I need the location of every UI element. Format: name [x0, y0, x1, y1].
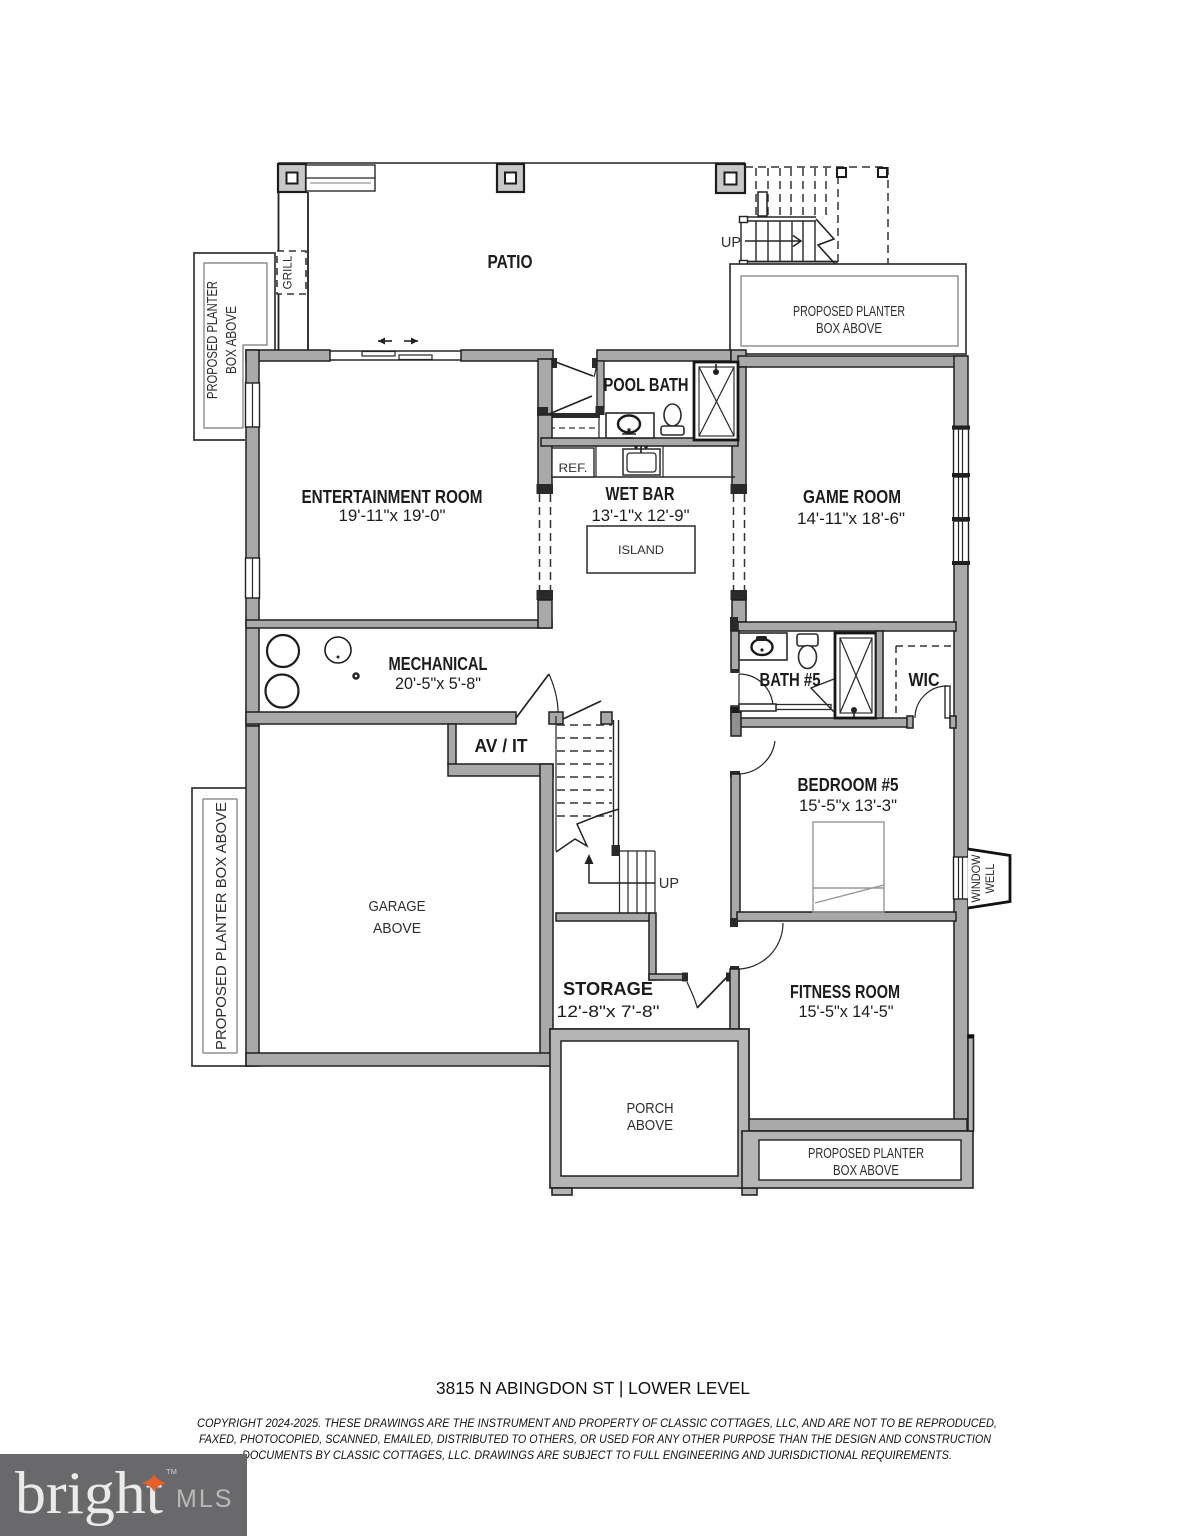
svg-text:GAME ROOM: GAME ROOM [803, 487, 901, 507]
svg-text:12'-8"x 7'-8": 12'-8"x 7'-8" [557, 1003, 660, 1021]
svg-text:TM: TM [166, 1467, 177, 1476]
svg-text:UP: UP [659, 876, 679, 892]
svg-text:BOX ABOVE: BOX ABOVE [833, 1163, 899, 1179]
svg-text:ABOVE: ABOVE [373, 921, 421, 937]
svg-text:DOCUMENTS BY CLASSIC COTTAGES,: DOCUMENTS BY CLASSIC COTTAGES, LLC. DRAW… [242, 1449, 952, 1462]
svg-text:GRILL: GRILL [283, 255, 295, 290]
svg-text:STORAGE: STORAGE [563, 979, 653, 999]
svg-text:UP: UP [721, 235, 741, 251]
svg-text:ENTERTAINMENT ROOM: ENTERTAINMENT ROOM [302, 487, 483, 507]
svg-text:GARAGE: GARAGE [369, 899, 426, 915]
svg-text:13'-1"x 12'-9": 13'-1"x 12'-9" [592, 507, 690, 525]
svg-text:PORCH: PORCH [627, 1101, 674, 1117]
svg-text:15'-5"x 13'-3": 15'-5"x 13'-3" [799, 797, 897, 815]
svg-text:20'-5"x 5'-8": 20'-5"x 5'-8" [395, 675, 481, 693]
svg-text:WET BAR: WET BAR [606, 484, 675, 504]
svg-text:PROPOSED PLANTER: PROPOSED PLANTER [205, 281, 221, 399]
svg-text:PATIO: PATIO [488, 252, 533, 272]
svg-text:MLS: MLS [176, 1485, 233, 1513]
svg-text:BEDROOM #5: BEDROOM #5 [798, 775, 899, 795]
svg-text:PROPOSED PLANTER: PROPOSED PLANTER [793, 304, 905, 320]
svg-text:ISLAND: ISLAND [618, 545, 664, 557]
svg-text:BATH #5: BATH #5 [760, 670, 821, 690]
svg-text:bright: bright [15, 1460, 163, 1526]
svg-text:BOX ABOVE: BOX ABOVE [816, 321, 882, 337]
svg-text:WIC: WIC [909, 670, 940, 690]
svg-text:ABOVE: ABOVE [627, 1118, 673, 1134]
svg-text:19'-11"x 19'-0": 19'-11"x 19'-0" [339, 507, 446, 525]
svg-text:14'-11"x 18'-6": 14'-11"x 18'-6" [797, 510, 905, 528]
svg-text:3815 N ABINGDON ST | LOWER LEV: 3815 N ABINGDON ST | LOWER LEVEL [436, 1378, 750, 1398]
svg-text:AV / IT: AV / IT [475, 736, 528, 756]
svg-text:PROPOSED PLANTER: PROPOSED PLANTER [808, 1146, 924, 1162]
svg-text:15'-5"x 14'-5": 15'-5"x 14'-5" [799, 1003, 894, 1021]
svg-text:BOX ABOVE: BOX ABOVE [224, 306, 240, 374]
svg-text:WINDOW: WINDOW [971, 854, 983, 902]
svg-text:FITNESS ROOM: FITNESS ROOM [790, 982, 900, 1002]
svg-text:REF.: REF. [559, 463, 588, 475]
svg-text:WELL: WELL [985, 863, 997, 894]
svg-text:PROPOSED PLANTER BOX ABOVE: PROPOSED PLANTER BOX ABOVE [214, 802, 230, 1050]
svg-text:MECHANICAL: MECHANICAL [389, 654, 488, 674]
svg-text:FAXED, PHOTOCOPIED, SCANNED, E: FAXED, PHOTOCOPIED, SCANNED, EMAILED, DI… [199, 1433, 992, 1446]
svg-text:COPYRIGHT 2024-2025. THESE DR: COPYRIGHT 2024-2025. THESE DRAWINGS ARE … [197, 1417, 997, 1430]
svg-text:POOL BATH: POOL BATH [604, 375, 689, 395]
